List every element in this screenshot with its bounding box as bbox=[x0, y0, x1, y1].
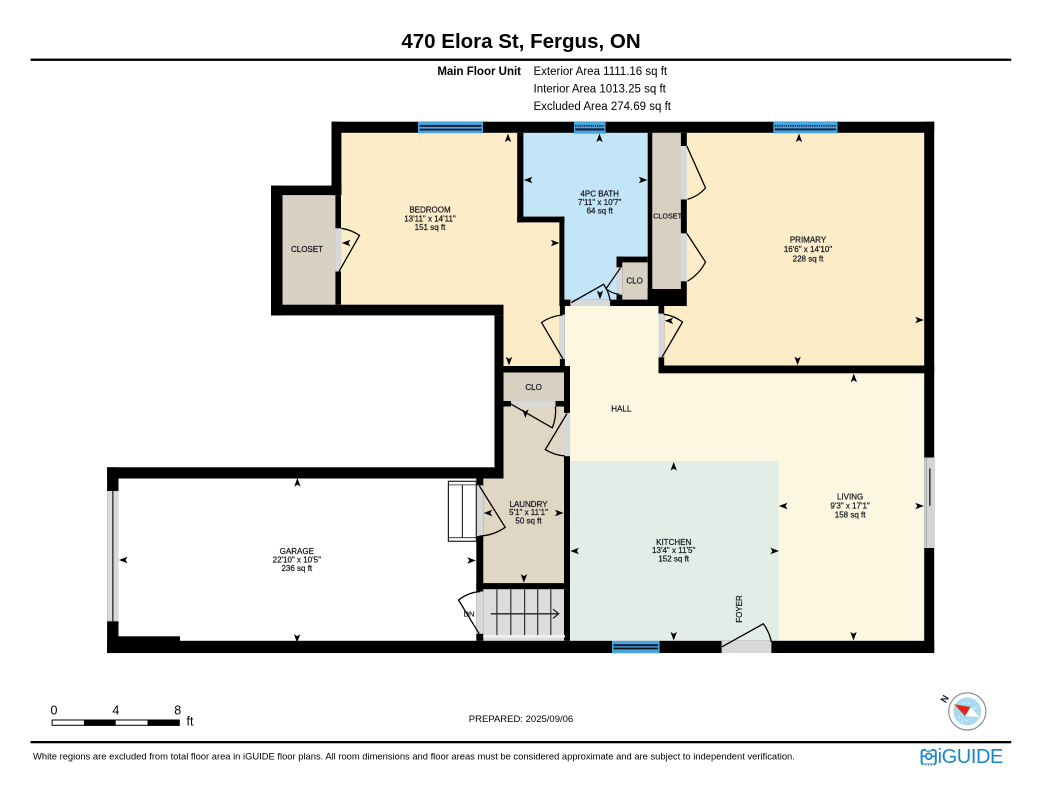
svg-text:16'6" x 14'10": 16'6" x 14'10" bbox=[784, 245, 832, 254]
svg-text:158 sq ft: 158 sq ft bbox=[835, 511, 866, 520]
svg-text:236 sq ft: 236 sq ft bbox=[281, 564, 312, 573]
svg-text:HALL: HALL bbox=[611, 404, 632, 413]
svg-text:CLOSET: CLOSET bbox=[291, 245, 323, 254]
svg-text:iGUIDE: iGUIDE bbox=[938, 746, 1003, 768]
svg-text:151 sq ft: 151 sq ft bbox=[415, 223, 446, 232]
svg-text:152 sq ft: 152 sq ft bbox=[658, 554, 689, 563]
svg-text:CLOSET: CLOSET bbox=[653, 212, 682, 221]
svg-text:PRIMARY: PRIMARY bbox=[790, 235, 827, 244]
svg-text:9'3" x 17'1": 9'3" x 17'1" bbox=[830, 502, 870, 511]
svg-text:Interior Area 1013.25 sq ft: Interior Area 1013.25 sq ft bbox=[534, 83, 667, 95]
svg-text:White regions are excluded fro: White regions are excluded from total fl… bbox=[33, 750, 795, 761]
svg-text:64 sq ft: 64 sq ft bbox=[587, 206, 614, 215]
svg-text:LIVING: LIVING bbox=[837, 492, 863, 501]
svg-text:0: 0 bbox=[51, 704, 58, 718]
svg-text:Exterior Area 1111.16 sq ft: Exterior Area 1111.16 sq ft bbox=[534, 66, 668, 78]
svg-text:CLO: CLO bbox=[525, 383, 541, 392]
svg-text:Excluded Area 274.69 sq ft: Excluded Area 274.69 sq ft bbox=[534, 101, 672, 113]
svg-text:Main Floor Unit: Main Floor Unit bbox=[437, 66, 521, 78]
svg-text:22'10" x 10'5": 22'10" x 10'5" bbox=[273, 555, 321, 564]
svg-text:4: 4 bbox=[112, 704, 119, 718]
svg-text:470 Elora St, Fergus, ON: 470 Elora St, Fergus, ON bbox=[401, 30, 640, 53]
svg-text:ft: ft bbox=[187, 715, 194, 729]
svg-text:13'11" x 14'11": 13'11" x 14'11" bbox=[404, 215, 456, 224]
svg-text:228 sq ft: 228 sq ft bbox=[793, 254, 824, 263]
svg-text:PREPARED: 2025/09/06: PREPARED: 2025/09/06 bbox=[469, 714, 573, 725]
svg-text:50 sq ft: 50 sq ft bbox=[515, 516, 542, 525]
svg-text:N: N bbox=[939, 693, 952, 705]
svg-text:CLO: CLO bbox=[626, 277, 642, 286]
svg-text:FOYER: FOYER bbox=[735, 595, 744, 623]
svg-text:BEDROOM: BEDROOM bbox=[409, 206, 451, 215]
svg-text:8: 8 bbox=[174, 704, 181, 718]
svg-text:DN: DN bbox=[464, 610, 475, 619]
